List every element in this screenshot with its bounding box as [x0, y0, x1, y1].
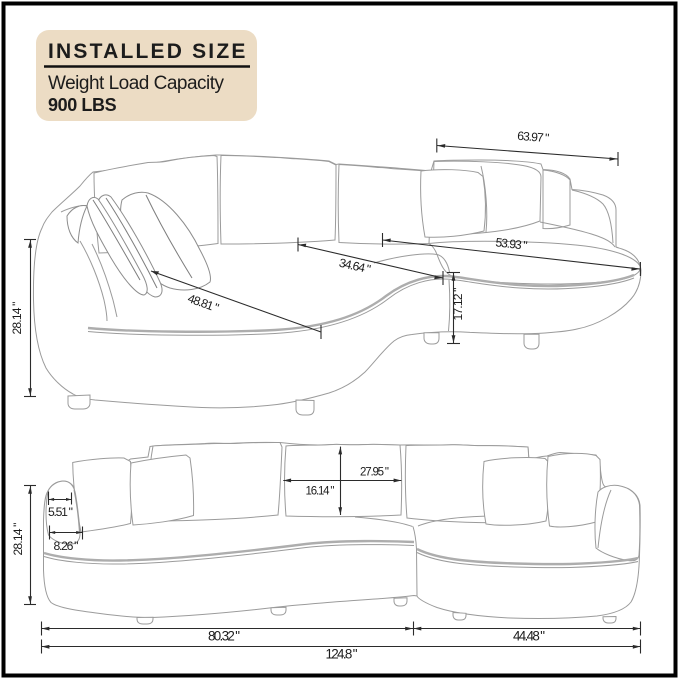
svg-text:28.14 ": 28.14 " — [11, 523, 25, 556]
svg-text:44.48 ": 44.48 " — [513, 629, 545, 644]
svg-text:27.95 ": 27.95 " — [360, 467, 389, 479]
svg-text:5.51 ": 5.51 " — [48, 505, 73, 519]
svg-text:Weight Load Capacity: Weight Load Capacity — [48, 73, 225, 94]
svg-text:17.12 ": 17.12 " — [451, 288, 465, 321]
svg-text:63.97 ": 63.97 " — [517, 129, 550, 145]
svg-text:16.14 ": 16.14 " — [306, 486, 335, 498]
svg-text:124.8 ": 124.8 " — [326, 647, 358, 662]
svg-text:80.32 ": 80.32 " — [208, 629, 240, 644]
svg-text:8.26 ": 8.26 " — [54, 539, 79, 553]
svg-text:28.14 ": 28.14 " — [10, 302, 24, 335]
svg-text:900 LBS: 900 LBS — [48, 95, 117, 115]
svg-text:INSTALLED SIZE: INSTALLED SIZE — [48, 40, 248, 63]
